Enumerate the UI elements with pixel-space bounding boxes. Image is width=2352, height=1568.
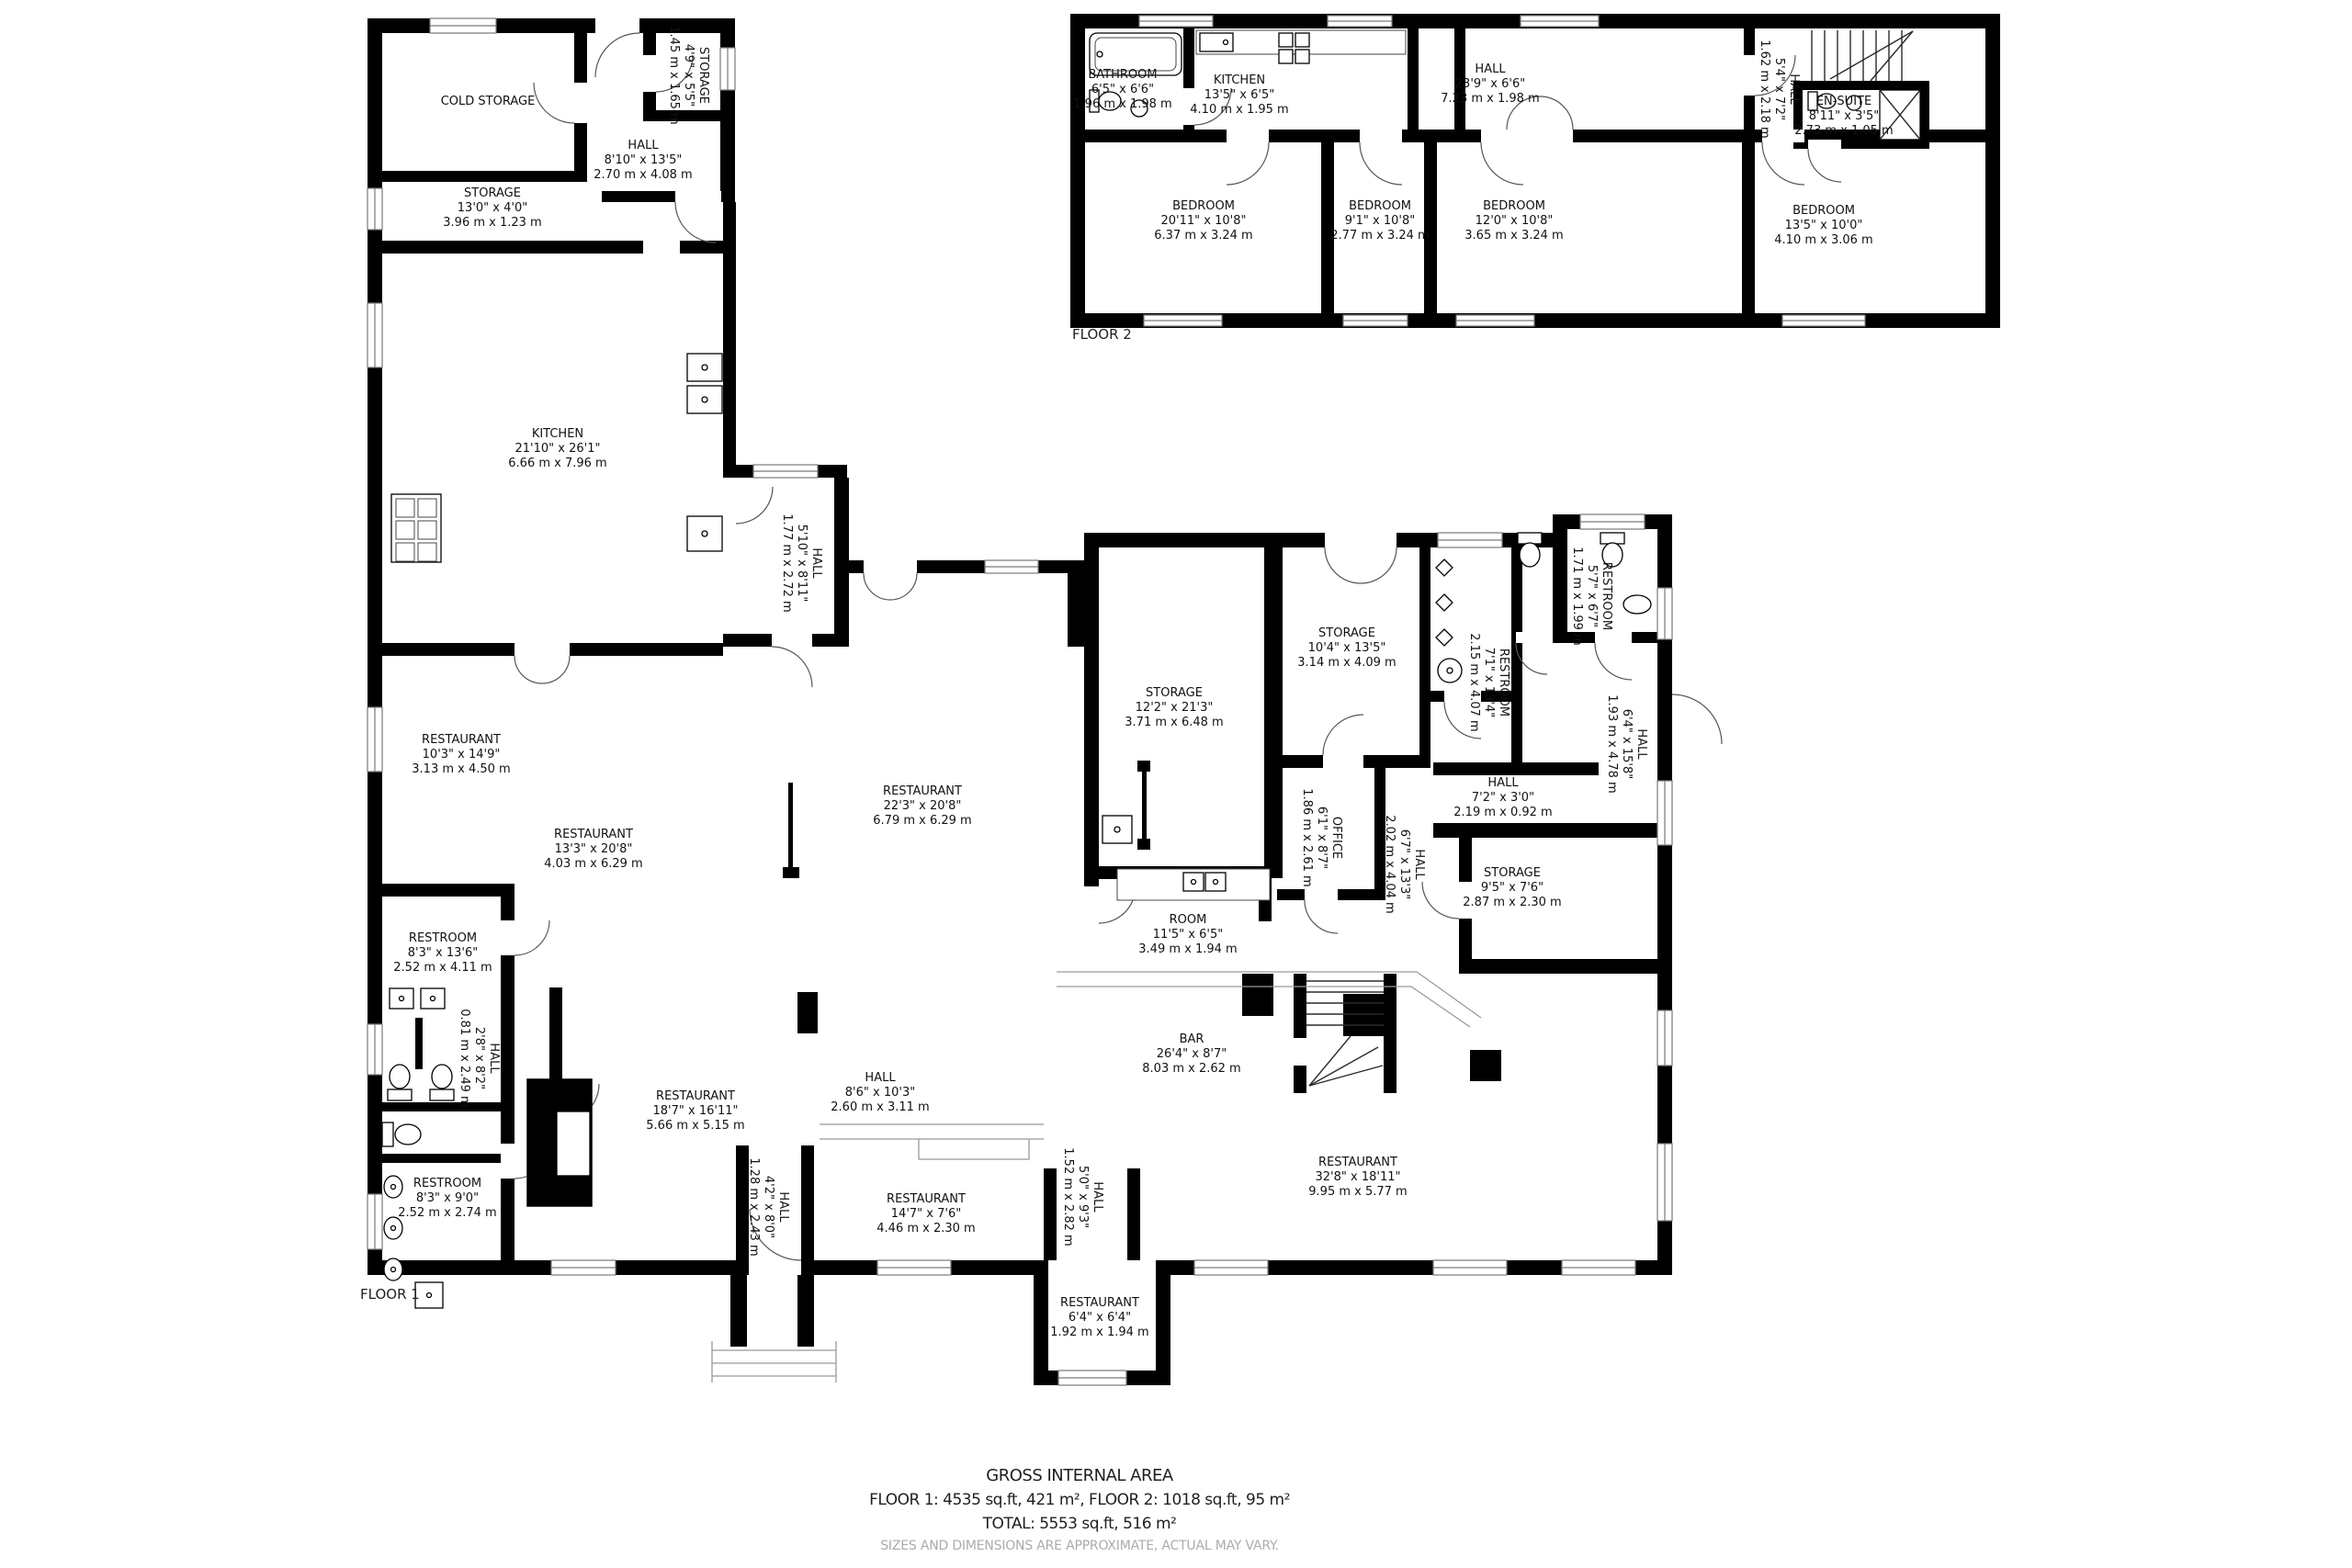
- f1-label-restaurant-328: RESTAURANT 32'8" x 18'11" 9.95 m x 5.77 …: [1308, 1156, 1407, 1200]
- floor1-tag: FLOOR 1: [360, 1286, 420, 1303]
- f2-label-bedroom-1: BEDROOM 20'11" x 10'8" 6.37 m x 3.24 m: [1154, 199, 1252, 243]
- f1-label-office: OFFICE 6'1" x 8'7" 1.86 m x 2.61 m: [1299, 788, 1343, 886]
- f2-label-kitchen: KITCHEN 13'5" x 6'5" 4.10 m x 1.95 m: [1190, 73, 1288, 118]
- f1-label-restaurant-64: RESTAURANT 6'4" x 6'4" 1.92 m x 1.94 m: [1050, 1296, 1148, 1340]
- f1-label-restaurant-187: RESTAURANT 18'7" x 16'11" 5.66 m x 5.15 …: [646, 1089, 744, 1134]
- floorplan-page: BATHROOM 6'5" x 6'6" 1.96 m x 1.98 m KIT…: [0, 0, 2352, 1568]
- f2-label-bathroom: BATHROOM 6'5" x 6'6" 1.96 m x 1.98 m: [1073, 68, 1171, 112]
- f2-label-bedroom-3: BEDROOM 12'0" x 10'8" 3.65 m x 3.24 m: [1464, 199, 1563, 243]
- f1-label-bar: BAR 26'4" x 8'7" 8.03 m x 2.62 m: [1142, 1032, 1240, 1077]
- f1-label-restaurant-103: RESTAURANT 10'3" x 14'9" 3.13 m x 4.50 m: [412, 733, 510, 777]
- f1-label-restaurant-133: RESTAURANT 13'3" x 20'8" 4.03 m x 6.29 m: [544, 828, 642, 872]
- f2-label-bedroom-2: BEDROOM 9'1" x 10'8" 2.77 m x 3.24 m: [1330, 199, 1429, 243]
- f1-label-restroom-57: RESTROOM 5'7" x 6'7" 1.71 m x 1.99 m: [1569, 547, 1613, 645]
- f1-label-hall-86: HALL 8'6" x 10'3" 2.60 m x 3.11 m: [831, 1071, 929, 1115]
- f1-label-storage-122: STORAGE 12'2" x 21'3" 3.71 m x 6.48 m: [1125, 686, 1223, 730]
- f1-label-storage-104: STORAGE 10'4" x 13'5" 3.14 m x 4.09 m: [1297, 626, 1396, 671]
- f1-label-hall-810: HALL 8'10" x 13'5" 2.70 m x 4.08 m: [594, 139, 692, 183]
- footer-total-area: TOTAL: 5553 sq.ft, 516 m²: [712, 1512, 1447, 1536]
- f1-label-restroom-71: RESTROOM 7'1" x 13'4" 2.15 m x 4.07 m: [1466, 633, 1510, 731]
- f1-label-restaurant-223: RESTAURANT 22'3" x 20'8" 6.79 m x 6.29 m: [873, 784, 971, 829]
- f2-label-hall: HALL 23'9" x 6'6" 7.23 m x 1.98 m: [1441, 62, 1539, 107]
- footer-title: GROSS INTERNAL AREA: [712, 1463, 1447, 1488]
- f1-label-hall-64: HALL 6'4" x 15'8" 1.93 m x 4.78 m: [1604, 694, 1648, 793]
- f1-label-restroom-836: RESTROOM 8'3" x 13'6" 2.52 m x 4.11 m: [393, 931, 492, 976]
- f1-label-hall-28: HALL 2'8" x 8'2" 0.81 m x 2.49 m: [457, 1009, 501, 1107]
- gross-internal-area-note: GROSS INTERNAL AREA FLOOR 1: 4535 sq.ft,…: [712, 1463, 1447, 1556]
- footer-floor-areas: FLOOR 1: 4535 sq.ft, 421 m², FLOOR 2: 10…: [712, 1488, 1447, 1512]
- f1-label-kitchen: KITCHEN 21'10" x 26'1" 6.66 m x 7.96 m: [508, 427, 606, 471]
- f1-label-cold-storage: COLD STORAGE: [441, 95, 536, 109]
- f1-label-hall-42: HALL 4'2" x 8'0" 1.28 m x 2.43 m: [746, 1157, 790, 1256]
- f1-label-hall-50: HALL 5'0" x 9'3" 1.52 m x 2.82 m: [1060, 1147, 1104, 1246]
- f1-label-storage-strip: STORAGE 13'0" x 4'0" 3.96 m x 1.23 m: [443, 186, 541, 231]
- f2-label-ensuite: EN-SUITE 8'11" x 3'5" 2.73 m x 1.05 m: [1794, 95, 1893, 139]
- f2-label-bedroom-4: BEDROOM 13'5" x 10'0" 4.10 m x 3.06 m: [1774, 204, 1872, 248]
- f1-label-restaurant-147: RESTAURANT 14'7" x 7'6" 4.46 m x 2.30 m: [876, 1192, 975, 1236]
- f1-label-hall-67: HALL 6'7" x 13'3" 2.02 m x 4.04 m: [1382, 815, 1426, 913]
- f1-label-room: ROOM 11'5" x 6'5" 3.49 m x 1.94 m: [1138, 913, 1237, 957]
- floor2-tag: FLOOR 2: [1072, 326, 1132, 343]
- f1-label-storage-small: STORAGE 4'9" x 5'5" 1.45 m x 1.65 m: [666, 26, 710, 124]
- f1-label-storage-95: STORAGE 9'5" x 7'6" 2.87 m x 2.30 m: [1463, 866, 1561, 910]
- f1-label-hall-72: HALL 7'2" x 3'0" 2.19 m x 0.92 m: [1453, 776, 1552, 820]
- f1-label-restroom-890: RESTROOM 8'3" x 9'0" 2.52 m x 2.74 m: [398, 1177, 496, 1221]
- f1-label-hall-510: HALL 5'10" x 8'11" 1.77 m x 2.72 m: [779, 513, 823, 612]
- footer-disclaimer: SIZES AND DIMENSIONS ARE APPROXIMATE, AC…: [712, 1536, 1447, 1556]
